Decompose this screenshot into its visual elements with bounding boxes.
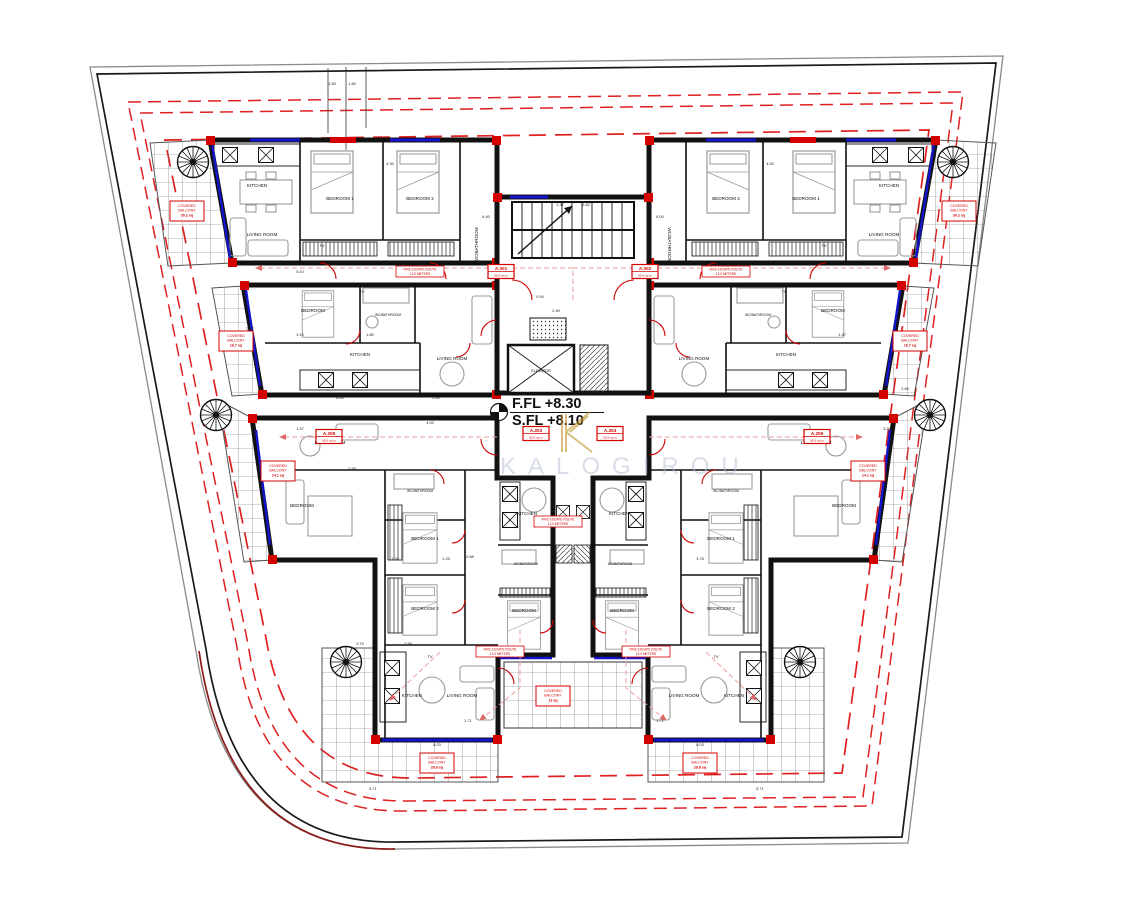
dimension-label: 4.52 [766,161,774,166]
dimension-label: 2.82 [582,202,590,207]
room-label: BEDROOM 1 [326,196,354,201]
balcony-tag: 14.1 sq [272,473,284,477]
dimension-label: 1.57 [296,426,304,431]
room-label: LIVING ROOM [869,232,900,237]
escape-route-tag: FIRE ESCAPE ROUTE [709,267,742,271]
unit-area: 55.0 sq.m [494,273,508,277]
escape-route-tag: FIRE ESCAPE ROUTE [403,267,436,271]
escape-route-tag: FIRE ESCAPE ROUTE [629,647,662,651]
escape-route-tag: FIRE ESCAPE ROUTE [541,517,574,521]
floor-plan-canvas: KITCHENLIVING ROOMBEDROOM 1BEDROOM 2WC/B… [0,0,1146,902]
dimension-label: 3.20 [883,426,891,431]
balcony-tag: 30.2 sq [953,213,965,217]
balcony-tag: BALCONY [428,760,446,764]
dimension-label: 5.71 [369,786,377,791]
dimension-label: 5.71 [756,786,764,791]
room-label: BEDROOM 2 [712,196,740,201]
dimension-label: 2.80 [901,386,909,391]
escape-route-tag: 12.0 METERS [716,272,736,276]
room-label: BEDROOM [832,503,856,508]
escape-route-tag: 12.0 METERS [490,652,510,656]
room-label: LIVING ROOM [437,356,468,361]
room-label: KITCHEN [879,183,899,188]
tv-label: TV [781,289,786,294]
unit-number: A.202 [639,266,652,271]
room-label: WC/BATHROOM [713,489,739,493]
dimension-label: 8.03 [696,742,704,747]
tv-label: TV [359,289,364,294]
dimension-label: 0.90 [536,294,544,299]
ffl-level-annotation: F.FL +8.30 [512,396,581,412]
room-label: KITCHEN [402,693,422,698]
dimension-label: 0.70 [356,641,364,646]
room-label: BEDROOM 1 [707,536,735,541]
balcony-tag: BALCONY [691,760,709,764]
balcony-tag: COVERED [950,204,968,208]
room-label: BEDROOM 2 [406,196,434,201]
balcony-tag: BALCONY [859,468,877,472]
escape-route-tag: 12.0 METERS [636,652,656,656]
dimension-label: 6.50 [336,395,344,400]
room-label: BEDROOM [301,308,325,313]
dimension-label: 0.88 [466,554,474,559]
room-label: BEDROOM 1 [792,196,820,201]
dimension-label: 5.10 [296,269,304,274]
room-label: KITCHEN [776,352,796,357]
room-label: BEDROOM [610,608,634,613]
dimension-label: 1.47 [838,332,846,337]
duct [580,345,608,393]
escape-route-tag: FIRE ESCAPE ROUTE [483,647,516,651]
balcony-tag: 16.7 sq [904,343,916,347]
room-label: BEDROOM 2 [707,606,735,611]
balcony-tag: BALCONY [901,338,919,342]
room-label: BEDROOM [821,308,845,313]
unit-area: 52.5 sq.m [529,435,543,439]
dimension-label: 3.10 [296,332,304,337]
room-label: KITCHEN [517,511,537,516]
unit-area: 55.0 sq.m [638,273,652,277]
dimension-label: 2.37 [556,202,564,207]
room-label: BEDROOM [290,503,314,508]
dimension-label: 2.40 [432,395,440,400]
dimension-label: 8.03 [433,742,441,747]
level-symbol-quadrant [499,404,508,413]
room-label: WC/BATHROOM [375,313,401,317]
escape-route-tag: 12.0 METERS [410,272,430,276]
tv-label: TV [821,243,826,248]
dimension-label: 8.00 [656,214,664,219]
balcony-tag: BALCONY [227,338,245,342]
room-label: BEDROOM [512,608,536,613]
balcony-tag: COVERED [178,204,196,208]
dimension-label: 4.30 [386,161,394,166]
room-label: LIVING ROOM [669,693,700,698]
room-label: WC/BATHROOM [667,227,672,262]
escape-route-tag: 12.0 METERS [548,522,568,526]
shaft-hatch [530,318,566,340]
tv-label: TV [319,243,324,248]
balcony-tag: COVERED [859,464,877,468]
unit-area: 52.5 sq.m [603,435,617,439]
unit-number: A.201 [495,266,508,271]
balcony-tag: BALCONY [544,693,562,697]
dimension-label: 6.40 [482,214,490,219]
dimension-label: 1.71 [464,718,472,723]
middle-balcony [504,662,642,728]
room-label: LIVING ROOM [247,232,278,237]
dimension-label: 2.90 [552,308,560,313]
dimension-label: 4.02 [426,420,434,425]
balcony-tag: COVERED [544,689,562,693]
room-label: BEDROOM 2 [411,606,439,611]
dimension-label: 3.85 [348,466,356,471]
room-label: KITCHEN [609,511,629,516]
balcony-tag: BALCONY [178,208,196,212]
elevator-label: ELEVATOR [531,369,551,373]
balcony-tag: COVERED [901,334,919,338]
balcony-tag: 28.8 sq [694,765,706,769]
dimension-label: 1.20 [391,556,399,561]
dimension-label: 2.47 [246,326,254,331]
balcony-tag: 14.1 sq [862,473,874,477]
dimension-label: 1.25 [442,556,450,561]
dimension-label: 3.78 [696,556,704,561]
balcony-tag: COVERED [269,464,287,468]
unit-area: 68.3 sq.m [322,438,336,442]
balcony-tag: 28.8 sq [431,765,443,769]
unit-number: A.205 [323,431,336,436]
balcony-tag: 13 sq [548,698,557,702]
dimension-label: 2.90 [404,641,412,646]
room-label: KITCHEN [350,352,370,357]
unit-area: 68.3 sq.m [810,438,824,442]
balcony-tag: COVERED [428,756,446,760]
room-label: WC/BATHROOM [407,489,433,493]
dimension-label: 1.80 [348,81,356,86]
balcony-tag: 30.2 sq [181,213,193,217]
stair-core [481,193,665,393]
room-label: LIVING ROOM [679,356,710,361]
room-label: LIVING ROOM [447,693,478,698]
watermark-text: KALOGIROU [500,453,751,480]
balcony-tag: BALCONY [269,468,287,472]
dimension-label: 1.71 [656,718,664,723]
unit-number: A.204 [604,428,617,433]
room-label: BEDROOM 1 [411,536,439,541]
tv-label: TV [427,654,432,659]
balcony-tag: COVERED [227,334,245,338]
room-label: KITCHEN [724,693,744,698]
room-label: WC/BATHROOM [608,562,633,566]
floor-plan-page: KITCHENLIVING ROOMBEDROOM 1BEDROOM 2WC/B… [0,0,1146,902]
dimension-label: 1.80 [366,332,374,337]
room-label: WC/BATHROOM [474,227,479,262]
dimension-label: 1.50 [328,81,336,86]
balcony-tag: BALCONY [950,208,968,212]
room-label: WC/BATHROOM [514,562,539,566]
room-label: WC/BATHROOM [745,313,771,317]
balcony-tag: COVERED [691,756,709,760]
balcony-tag: 16.7 sq [230,343,242,347]
unit-number: A.206 [811,431,824,436]
tv-label: TV [713,654,718,659]
room-label: KITCHEN [247,183,267,188]
